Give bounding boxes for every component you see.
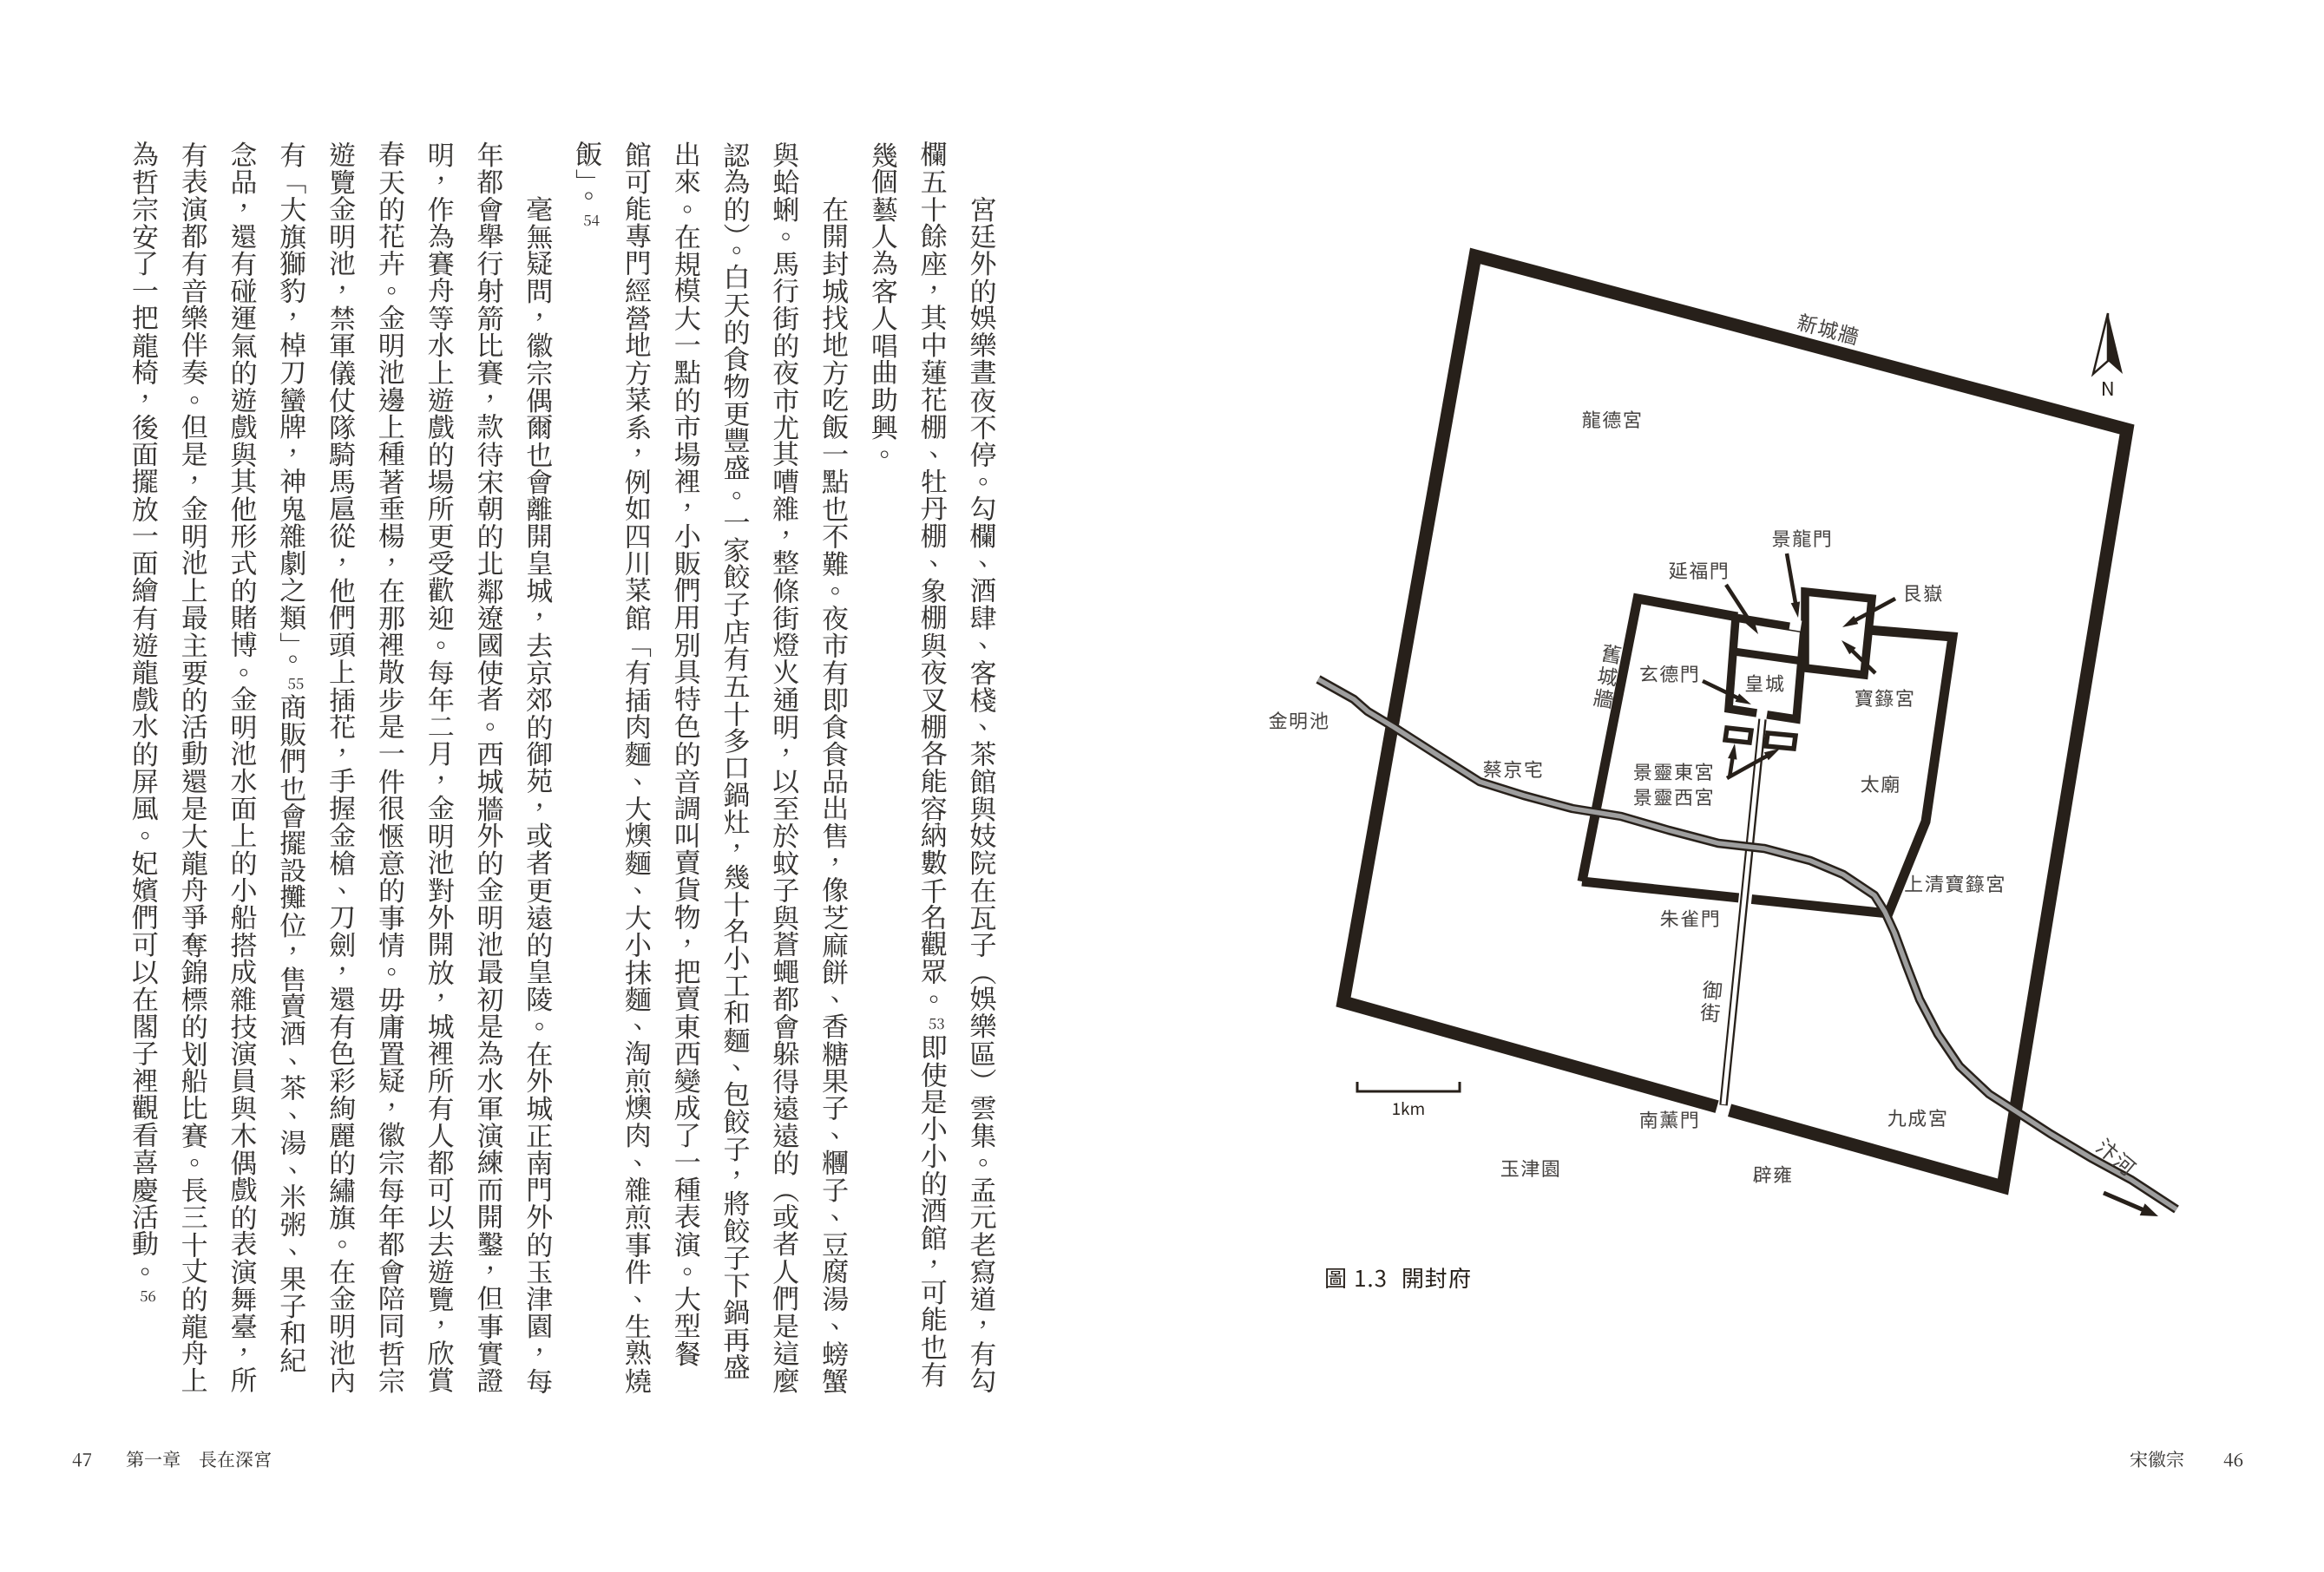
svg-text:寶籙宮: 寶籙宮 [1855,684,1916,711]
svg-text:N: N [2101,374,2115,402]
svg-text:太廟: 太廟 [1860,770,1901,797]
svg-text:景靈西宮: 景靈西宮 [1633,783,1715,810]
svg-text:九成宮: 九成宮 [1887,1104,1949,1131]
svg-text:景龍門: 景龍門 [1772,524,1834,552]
svg-text:皇城: 皇城 [1744,669,1785,697]
svg-text:玉津園: 玉津園 [1500,1154,1562,1182]
svg-text:街: 街 [1699,996,1722,1027]
svg-text:1km: 1km [1392,1097,1426,1120]
svg-text:玄德門: 玄德門 [1639,659,1701,687]
svg-text:南薰門: 南薰門 [1639,1105,1701,1133]
svg-text:金明池: 金明池 [1269,706,1330,734]
svg-text:圖 1.3開封府: 圖 1.3開封府 [1324,1261,1472,1294]
svg-text:龍德宮: 龍德宮 [1582,405,1644,433]
svg-text:延福門: 延福門 [1669,556,1730,584]
svg-text:汴河: 汴河 [2091,1130,2144,1182]
svg-text:上清寶籙宮: 上清寶籙宮 [1904,869,2006,897]
svg-text:艮嶽: 艮嶽 [1902,579,1943,606]
svg-text:景靈東宮: 景靈東宮 [1633,757,1715,785]
svg-text:辟雍: 辟雍 [1752,1160,1793,1188]
svg-text:蔡京宅: 蔡京宅 [1483,755,1545,783]
svg-text:朱雀門: 朱雀門 [1660,904,1722,932]
